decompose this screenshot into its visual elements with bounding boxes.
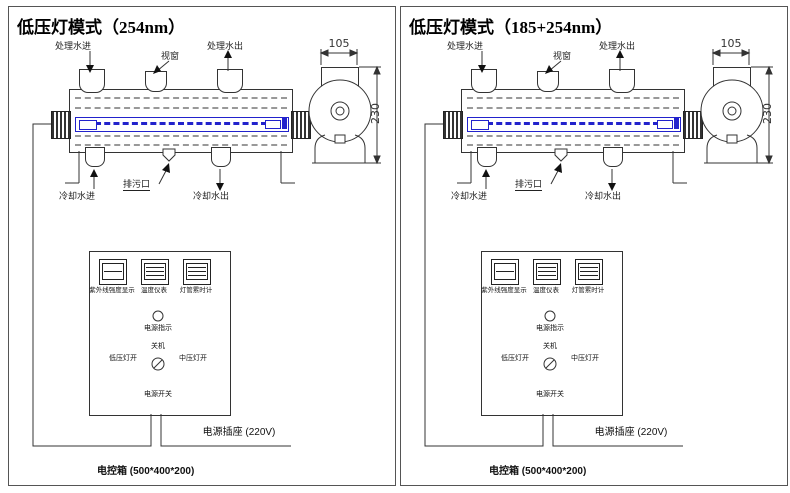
side-view-hub <box>728 107 736 115</box>
window-arrow <box>153 65 161 74</box>
cooling-in-arrow <box>482 169 490 177</box>
inlet-label: 处理水进 <box>447 41 483 51</box>
side-view-notch <box>727 135 737 143</box>
outlet-arrow <box>616 50 624 58</box>
inlet-arrow <box>478 65 486 73</box>
dim-230-arrow-bottom <box>374 156 380 163</box>
drawing-sheet: { "colors": { "lamp": "#2222cc", "line":… <box>0 0 790 493</box>
side-view-hub <box>336 107 344 115</box>
socket-label: 电源插座 (220V) <box>189 423 289 438</box>
side-view-notch <box>335 135 345 143</box>
cooling-in-label: 冷却水进 <box>59 191 95 201</box>
cooling-in-arrow <box>90 169 98 177</box>
drain-label: 排污口 <box>515 179 542 191</box>
cooling-out-arrow <box>608 183 616 191</box>
cooling-out-label: 冷却水出 <box>585 191 621 201</box>
drain-arrow <box>162 163 170 173</box>
control-box-label: 电控箱 (500*400*200) <box>97 462 194 477</box>
indicator-lamp <box>153 311 163 321</box>
dim-230-arrow-top <box>374 67 380 74</box>
dim-105-text: 105 <box>319 37 359 50</box>
outlet-arrow <box>224 50 232 58</box>
arrow-heads <box>86 50 232 191</box>
dim-105-arrow-left <box>713 50 720 56</box>
control-box-label: 电控箱 (500*400*200) <box>489 462 586 477</box>
chamber-legs <box>65 151 295 183</box>
dim-105-text: 105 <box>711 37 751 50</box>
window-label: 视窗 <box>161 51 179 61</box>
drain-label: 排污口 <box>123 179 150 191</box>
lamp-power-cable <box>425 124 543 446</box>
chamber-legs <box>457 151 687 183</box>
inlet-arrow <box>86 65 94 73</box>
dim-230-arrow-bottom <box>766 156 772 163</box>
cooling-in-label: 冷却水进 <box>451 191 487 201</box>
drain-port <box>555 149 567 161</box>
diagram-linework <box>401 7 787 485</box>
panel-254nm: 低压灯模式（254nm） 紫外线强度显示 温度仪表 灯管累时计 电源指示 关机 … <box>8 6 396 486</box>
indicator-lamp <box>545 311 555 321</box>
window-arrow <box>545 65 553 74</box>
cooling-out-arrow <box>216 183 224 191</box>
panel-185-254nm: 低压灯模式（185+254nm） 紫外线强度显示 温度仪表 灯管累时计 电源指示… <box>400 6 788 486</box>
socket-label: 电源插座 (220V) <box>581 423 681 438</box>
outlet-label: 处理水出 <box>207 41 243 51</box>
arrow-heads <box>478 50 624 191</box>
outlet-label: 处理水出 <box>599 41 635 51</box>
window-label: 视窗 <box>553 51 571 61</box>
dim-230-text: 230 <box>761 103 774 124</box>
dim-105-arrow-left <box>321 50 328 56</box>
drain-arrow <box>554 163 562 173</box>
diagram-linework <box>9 7 395 485</box>
cooling-out-label: 冷却水出 <box>193 191 229 201</box>
lamp-power-cable <box>33 124 151 446</box>
dim-105-arrow-right <box>350 50 357 56</box>
dim-105-arrow-right <box>742 50 749 56</box>
dim-230-text: 230 <box>369 103 382 124</box>
drain-port <box>163 149 175 161</box>
inlet-label: 处理水进 <box>55 41 91 51</box>
dim-230-arrow-top <box>766 67 772 74</box>
